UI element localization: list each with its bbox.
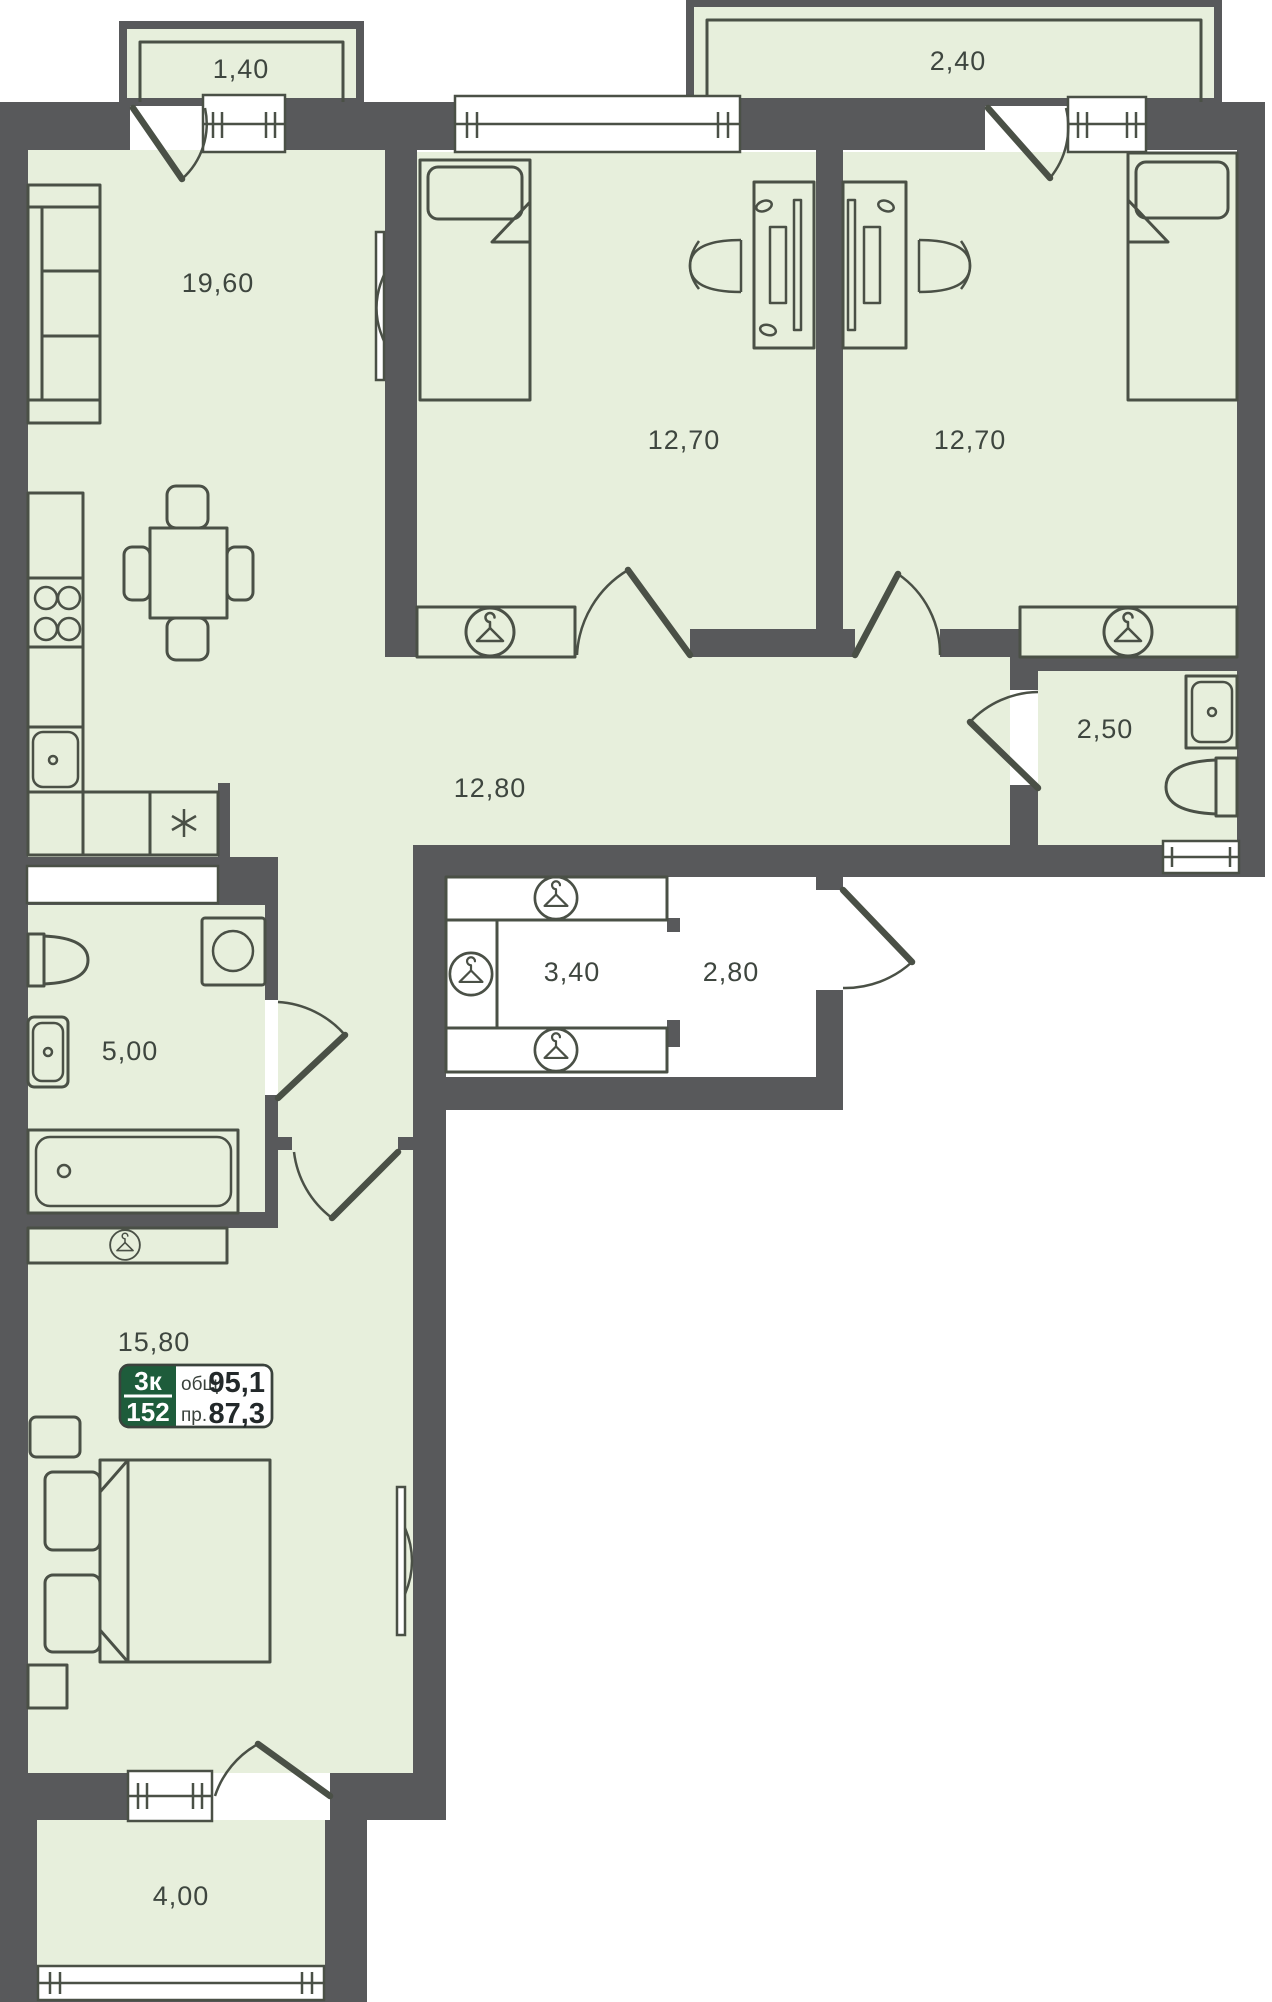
room-label-entry: 2,80 [703, 957, 760, 987]
hanger-icon [535, 1029, 577, 1071]
room-label-closet: 3,40 [544, 957, 601, 987]
badge-unit-number: 152 [126, 1397, 169, 1427]
room-label-balcony-top-left: 1,40 [213, 54, 270, 84]
window-bedroom-master-balcony [128, 1771, 212, 1821]
floor-plan-page: 1,40 2,40 19,60 12,70 12,70 2,50 12,80 3… [0, 0, 1272, 2002]
room-label-bathroom-guest: 2,50 [1077, 714, 1134, 744]
badge-total-value: 95,1 [209, 1367, 265, 1399]
unit-badge: 3к 152 общ. 95,1 пр. 87,3 [120, 1365, 272, 1430]
badge-living-label: пр. [181, 1405, 207, 1426]
room-label-kitchen-living: 19,60 [182, 268, 255, 298]
entrance-door [843, 890, 912, 988]
window-bathroom-guest [1163, 841, 1239, 873]
window-balcony-top-left [203, 95, 285, 152]
room-label-bathroom-main: 5,00 [102, 1036, 159, 1066]
room-label-balcony-top-right: 2,40 [930, 46, 987, 76]
hanger-icon [450, 953, 492, 995]
room-label-bedroom-master: 15,80 [118, 1327, 191, 1357]
floor-plan: 1,40 2,40 19,60 12,70 12,70 2,50 12,80 3… [0, 0, 1272, 2002]
room-label-balcony-bottom: 4,00 [153, 1881, 210, 1911]
room-label-bedroom-1: 12,70 [648, 425, 721, 455]
tv-living [376, 232, 384, 380]
room-label-bedroom-2: 12,70 [934, 425, 1007, 455]
badge-living-value: 87,3 [209, 1398, 265, 1430]
hanger-icon [535, 877, 577, 919]
room-fills [28, 150, 1237, 1966]
badge-room-count: 3к [134, 1366, 162, 1396]
window-balcony-top-right [1068, 97, 1146, 152]
window-balcony-bottom [38, 1966, 324, 2000]
ventilation-shaft [27, 866, 218, 903]
room-label-hallway: 12,80 [454, 773, 527, 803]
window-bedroom-1 [455, 96, 740, 152]
